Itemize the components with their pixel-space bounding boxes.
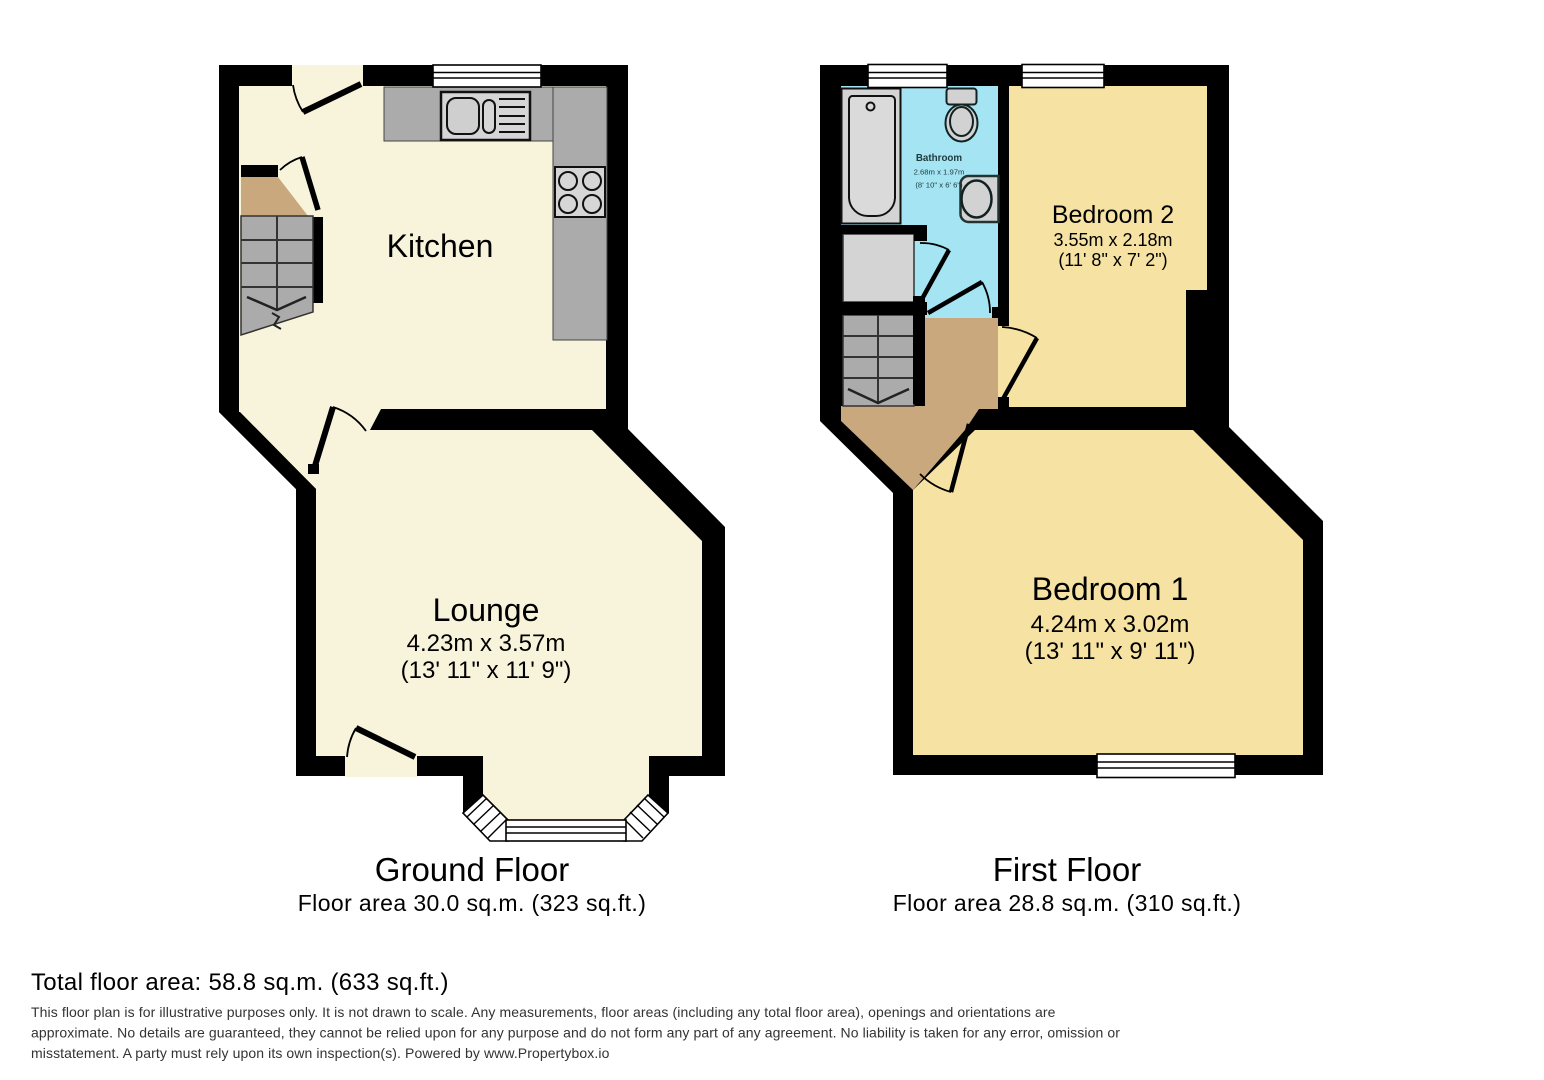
svg-text:4.23m x 3.57m: 4.23m x 3.57m [407,630,566,657]
svg-text:First Floor: First Floor [993,851,1142,888]
svg-text:(11' 8" x 7' 2"): (11' 8" x 7' 2") [1058,250,1167,270]
svg-text:Bedroom 1: Bedroom 1 [1032,571,1189,607]
svg-text:Ground Floor: Ground Floor [375,851,569,888]
svg-text:Bedroom 2: Bedroom 2 [1052,201,1174,229]
svg-text:misstatement. A party must rel: misstatement. A party must rely upon its… [31,1045,610,1061]
svg-text:Kitchen: Kitchen [387,228,494,264]
svg-text:Floor area 28.8 sq.m. (310 sq.: Floor area 28.8 sq.m. (310 sq.ft.) [893,890,1242,916]
svg-text:Floor area 30.0 sq.m. (323 sq.: Floor area 30.0 sq.m. (323 sq.ft.) [298,890,647,916]
svg-text:approximate. No details are gu: approximate. No details are guaranteed, … [31,1025,1120,1041]
svg-text:3.55m x 2.18m: 3.55m x 2.18m [1053,230,1172,250]
svg-text:Lounge: Lounge [433,592,540,628]
svg-text:Total floor area: 58.8 sq.m. (: Total floor area: 58.8 sq.m. (633 sq.ft.… [31,969,449,996]
svg-text:4.24m x 3.02m: 4.24m x 3.02m [1031,611,1190,638]
svg-text:2.68m x 1.97m: 2.68m x 1.97m [914,168,965,177]
svg-text:(13' 11" x 11' 9"): (13' 11" x 11' 9") [401,657,572,684]
svg-text:Bathroom: Bathroom [916,153,963,164]
svg-text:(8' 10" x 6' 6"): (8' 10" x 6' 6") [915,181,963,190]
svg-text:This floor plan is for illustr: This floor plan is for illustrative purp… [31,1004,1056,1020]
svg-text:(13' 11" x 9' 11"): (13' 11" x 9' 11") [1025,638,1196,665]
